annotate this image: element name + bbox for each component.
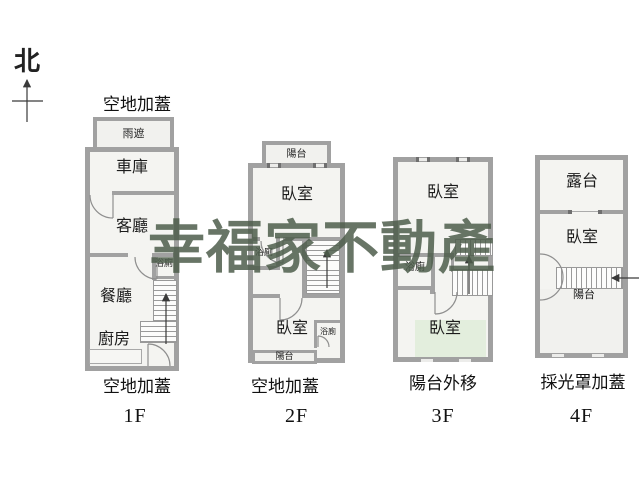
door-arc — [540, 277, 563, 300]
door-arc — [318, 336, 329, 347]
door-arc — [148, 344, 170, 366]
door-arc — [90, 195, 113, 218]
door-arc — [435, 292, 457, 314]
door-arc — [280, 298, 302, 320]
door-arc — [540, 254, 563, 277]
floor-plan-canvas: 北 空地加蓋 雨遮 車庫 客廳 浴廁 餐廳 廚房 空地加蓋 1F 陽台 臥室 浴… — [0, 0, 640, 480]
watermark: 幸福家不動產 — [148, 202, 496, 284]
